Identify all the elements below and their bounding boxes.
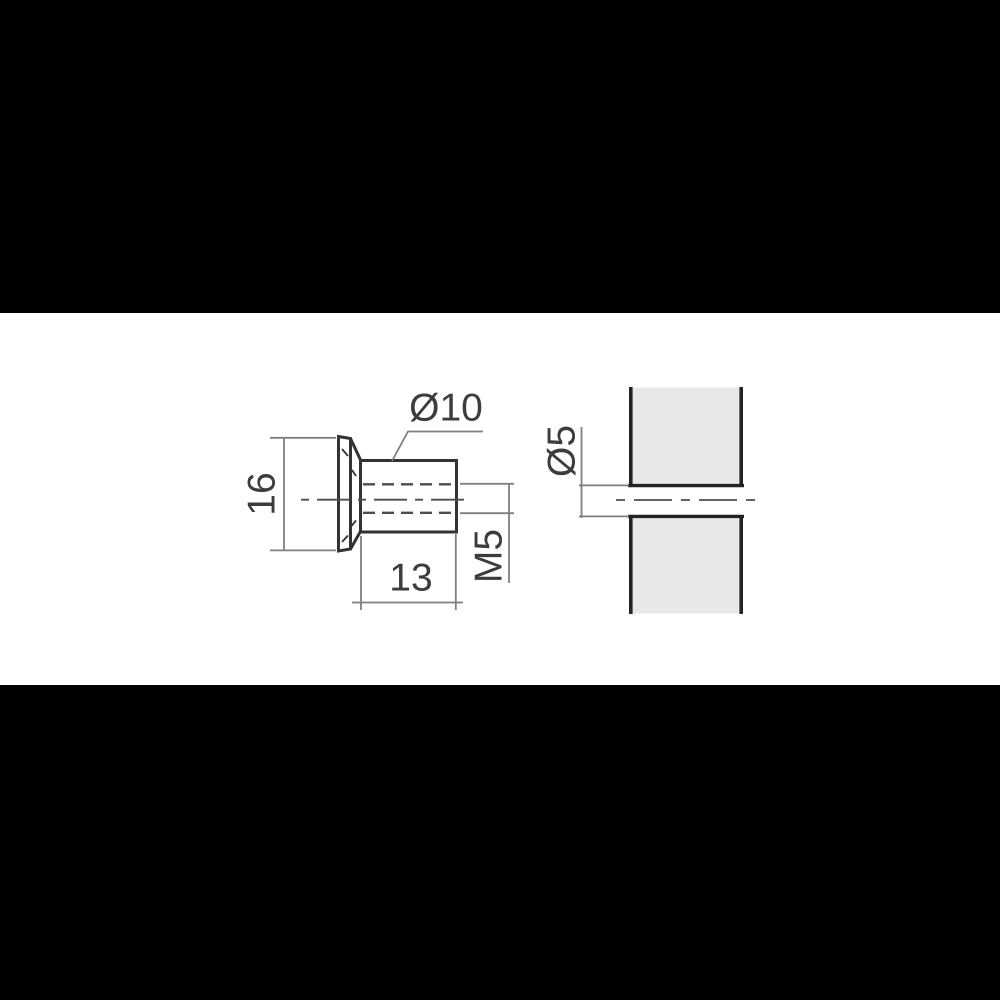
dim-label-head-diameter: Ø10 (409, 389, 483, 428)
panel-lower-fill (630, 517, 742, 614)
sleeve-flange (339, 437, 351, 552)
cone-tick-2 (352, 470, 356, 476)
panel-upper-fill (630, 388, 742, 486)
dim-d10-leader (392, 432, 483, 462)
dim-label-thread-size: M5 (470, 529, 509, 583)
dim-label-body-length: 13 (389, 559, 432, 598)
dim-label-hole-diameter: Ø5 (543, 425, 582, 477)
dim-label-flange-height: 16 (243, 472, 282, 515)
letterbox-background: Ø10 16 13 M5 Ø5 (0, 0, 1000, 1000)
sleeve-object-lines (339, 437, 457, 552)
sleeve-body (361, 461, 457, 533)
technical-drawing (0, 0, 1000, 1000)
sleeve-countersink-top-edge (351, 439, 362, 462)
